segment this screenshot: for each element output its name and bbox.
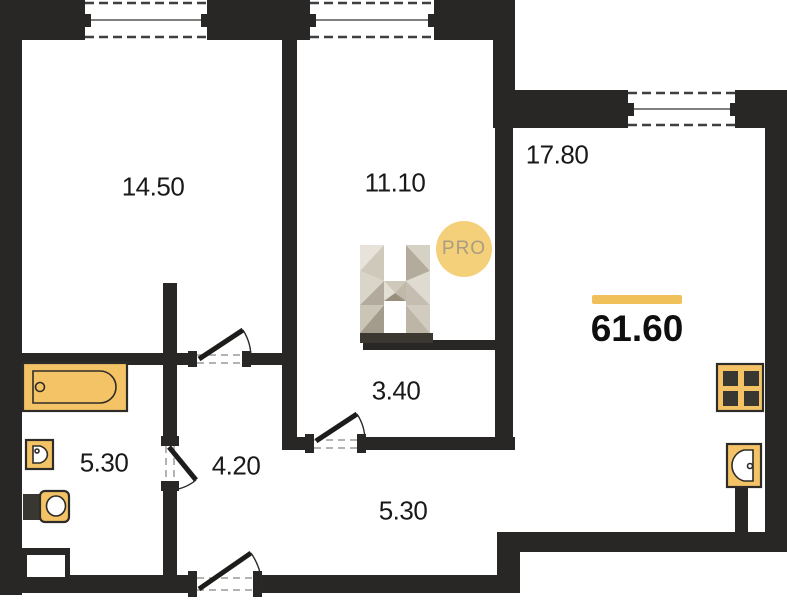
window-room-17-80: [623, 93, 741, 125]
area-label-room-14-50: 14.50: [122, 172, 185, 203]
total-area-accent-bar: [592, 295, 682, 304]
kitchen-sink-icon: [727, 444, 761, 487]
floor-plan: PRO 14.50 11.10 17.80 3.40 4.20 5.30 5.3…: [0, 0, 787, 600]
window-room-14-50: [80, 3, 212, 37]
stove-icon: [717, 364, 763, 411]
watermark-h: [360, 245, 433, 343]
door-bathroom: [161, 436, 196, 491]
door-entrance: [188, 553, 262, 597]
area-label-room-17-80: 17.80: [526, 140, 589, 171]
total-area-value: 61.60: [591, 308, 684, 350]
door-corridor-3-40: [305, 414, 366, 453]
area-label-hallway-5-30: 5.30: [379, 496, 428, 527]
area-label-bathroom-5-30: 5.30: [80, 448, 129, 479]
vent-shaft: [27, 555, 65, 577]
toilet-icon: [23, 491, 69, 522]
watermark-pro-text: PRO: [442, 238, 486, 260]
window-room-11-10: [305, 3, 439, 37]
area-label-corridor-3-40: 3.40: [372, 376, 421, 407]
area-label-room-11-10: 11.10: [365, 168, 426, 199]
door-room-14-50: [188, 330, 251, 367]
bathtub-icon: [23, 363, 127, 411]
area-label-hall-4-20: 4.20: [212, 451, 261, 482]
bathroom-sink-icon: [26, 440, 53, 469]
watermark-pro-badge: PRO: [436, 221, 492, 277]
